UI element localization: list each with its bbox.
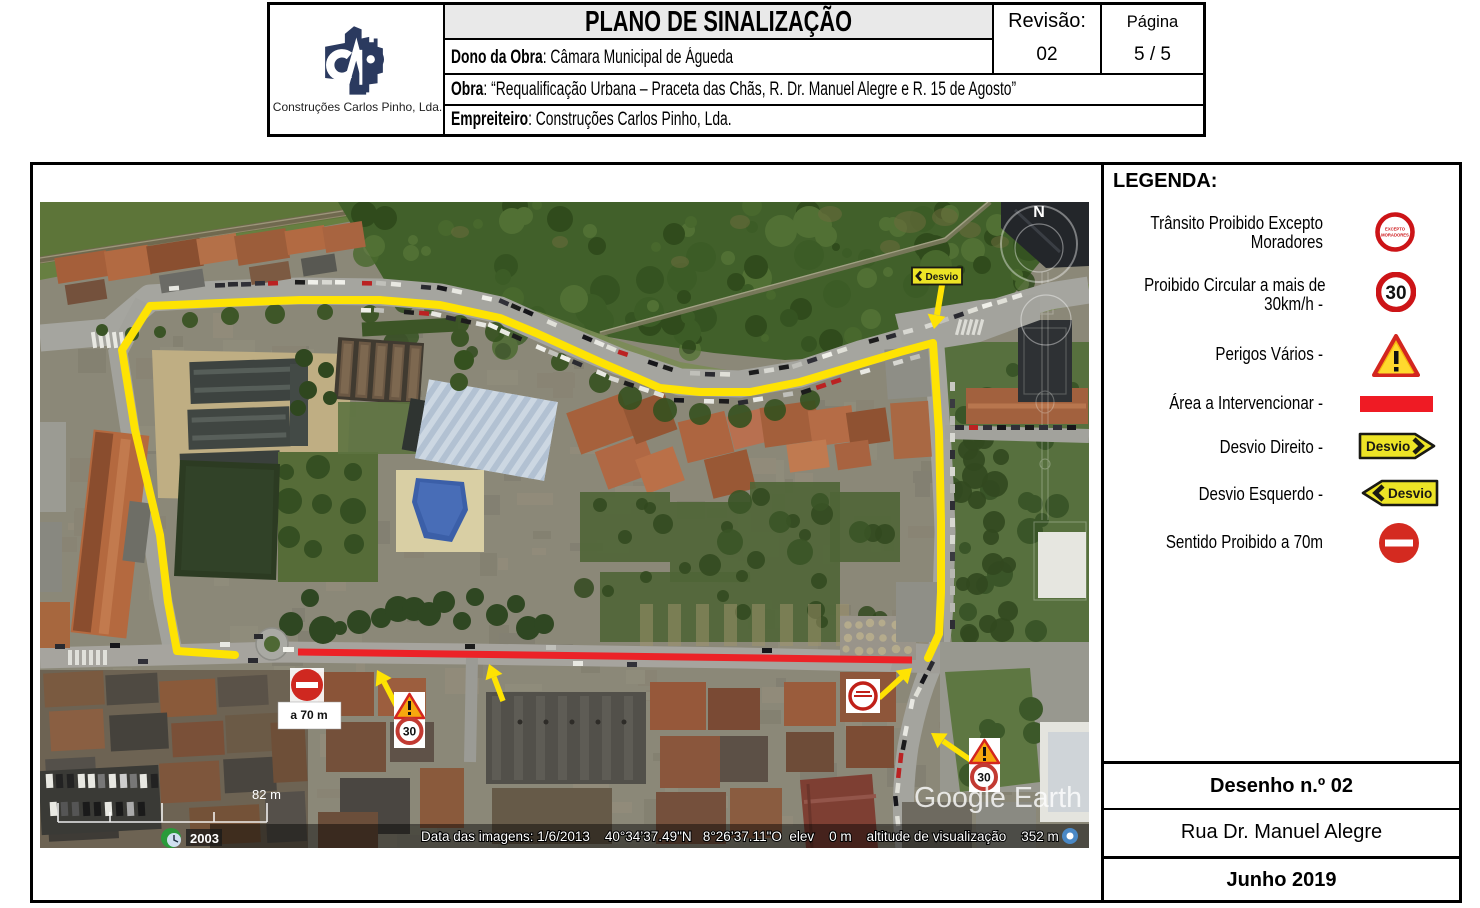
svg-text:30: 30 — [403, 725, 417, 739]
svg-text:30: 30 — [1385, 283, 1406, 304]
svg-text:Data das imagens: 1/6/2013: Data das imagens: 1/6/2013 40°34’37.49"N… — [421, 829, 1059, 844]
svg-text:N: N — [1033, 204, 1045, 221]
svg-text:Desvio: Desvio — [1388, 486, 1432, 501]
svg-text:EXCEPTO: EXCEPTO — [1385, 227, 1406, 232]
svg-text:Desvio: Desvio — [1366, 439, 1410, 454]
svg-text:Google Earth: Google Earth — [914, 782, 1082, 814]
svg-text:82 m: 82 m — [252, 787, 281, 802]
svg-text:MORADORES: MORADORES — [1381, 233, 1409, 238]
svg-text:Desvio: Desvio — [926, 272, 959, 283]
svg-text:a 70 m: a 70 m — [290, 708, 327, 722]
svg-text:2003: 2003 — [190, 831, 219, 846]
